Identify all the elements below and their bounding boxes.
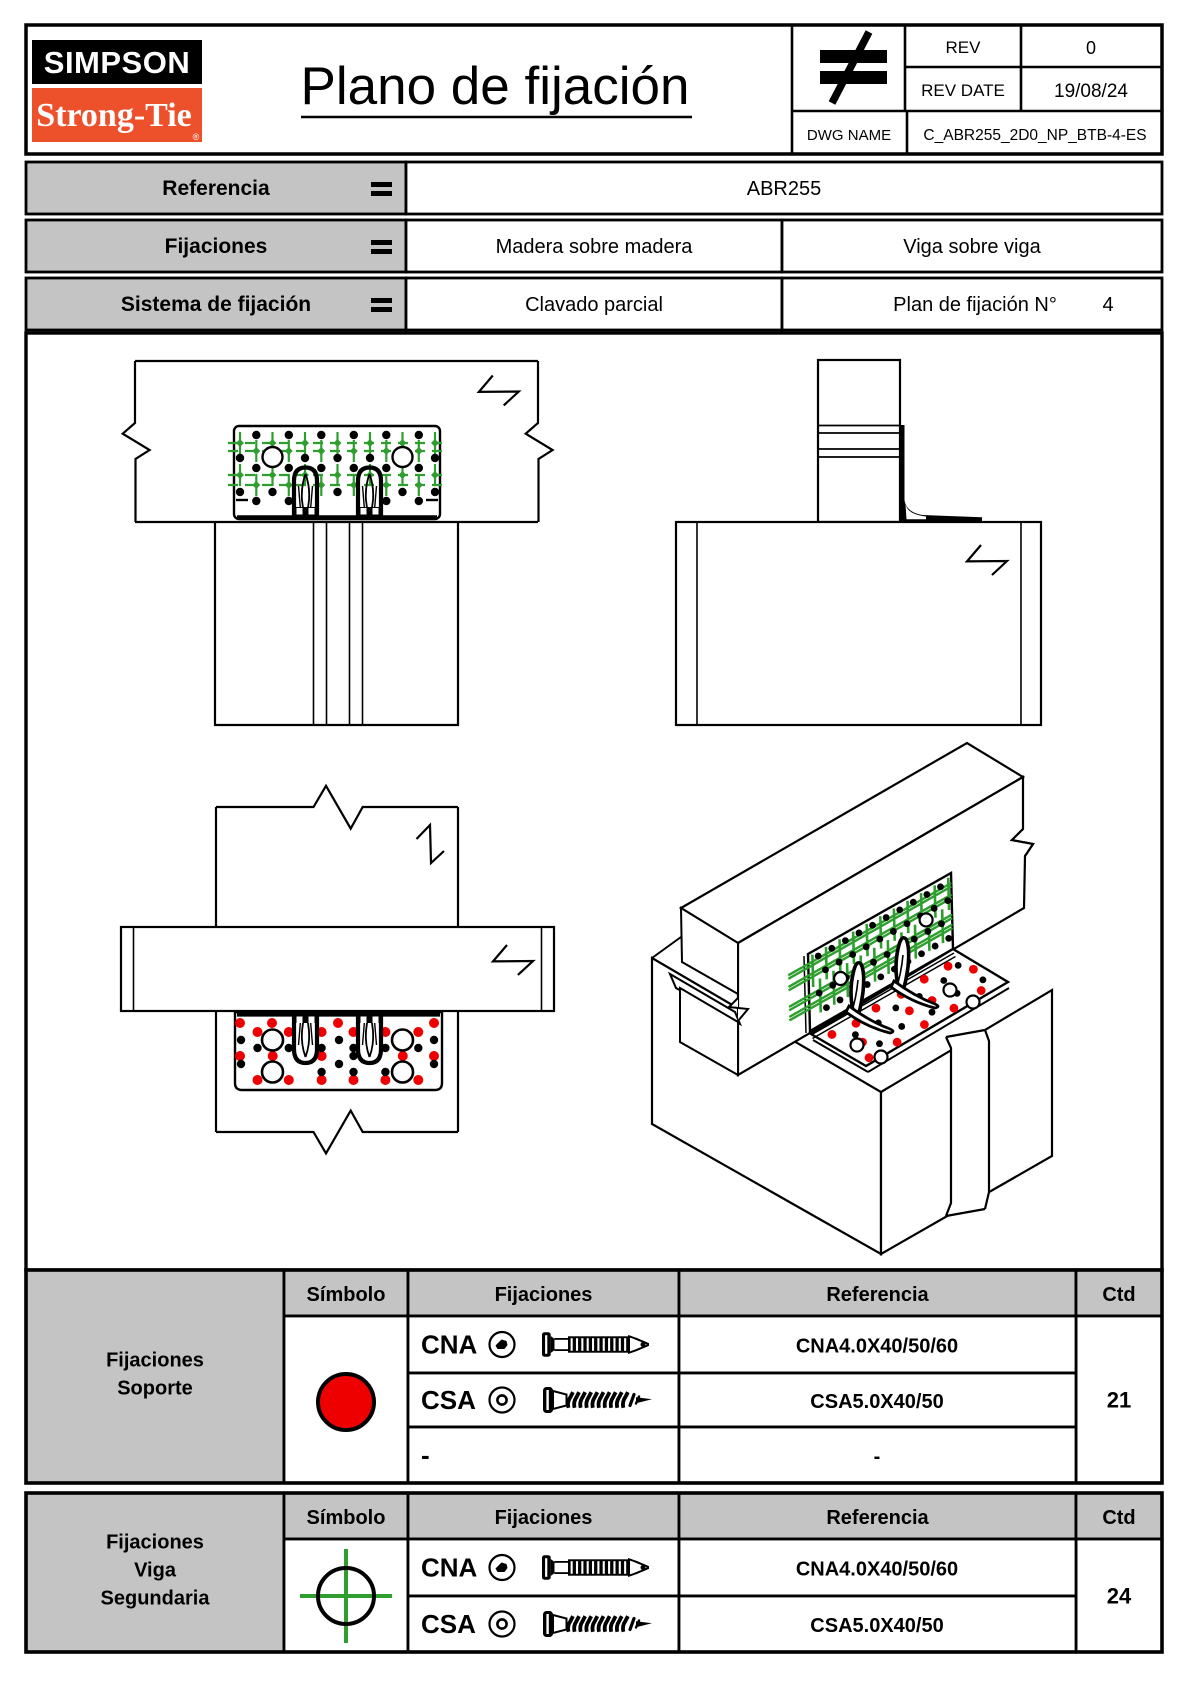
svg-text:Símbolo: Símbolo xyxy=(307,1507,386,1529)
svg-text:CNA: CNA xyxy=(421,1330,478,1360)
svg-text:Ctd: Ctd xyxy=(1102,1284,1135,1306)
svg-text:0: 0 xyxy=(1086,38,1096,58)
svg-text:Fijaciones: Fijaciones xyxy=(106,1350,204,1372)
svg-text:-: - xyxy=(874,1446,881,1468)
svg-text:Ctd: Ctd xyxy=(1102,1507,1135,1529)
svg-text:DWG NAME: DWG NAME xyxy=(807,127,891,144)
svg-text:REV: REV xyxy=(946,38,982,57)
svg-text:Strong-Tie: Strong-Tie xyxy=(36,97,192,134)
svg-text:Segundaria: Segundaria xyxy=(101,1588,211,1610)
svg-text:CSA: CSA xyxy=(421,1609,476,1639)
svg-text:Fijaciones: Fijaciones xyxy=(165,235,268,258)
svg-text:REV DATE: REV DATE xyxy=(921,81,1005,100)
svg-text:Sistema de fijación: Sistema de fijación xyxy=(121,293,311,316)
svg-text:19/08/24: 19/08/24 xyxy=(1054,81,1128,102)
svg-text:Viga: Viga xyxy=(134,1560,177,1582)
svg-text:-: - xyxy=(421,1440,430,1470)
svg-text:Fijaciones: Fijaciones xyxy=(495,1507,593,1529)
svg-text:CSA: CSA xyxy=(421,1385,476,1415)
svg-text:C_ABR255_2D0_NP_BTB-4-ES: C_ABR255_2D0_NP_BTB-4-ES xyxy=(923,127,1146,144)
svg-text:21: 21 xyxy=(1107,1388,1131,1413)
svg-text:4: 4 xyxy=(1102,294,1113,316)
svg-text:CNA4.0X40/50/60: CNA4.0X40/50/60 xyxy=(796,1559,958,1581)
svg-text:CNA4.0X40/50/60: CNA4.0X40/50/60 xyxy=(796,1336,958,1358)
svg-text:Referencia: Referencia xyxy=(826,1507,929,1529)
svg-text:Madera sobre madera: Madera sobre madera xyxy=(496,236,694,258)
svg-text:Referencia: Referencia xyxy=(826,1284,929,1306)
svg-text:SIMPSON: SIMPSON xyxy=(44,45,190,80)
svg-text:Plano de fijación: Plano de fijación xyxy=(301,57,690,116)
svg-text:ABR255: ABR255 xyxy=(747,178,822,200)
svg-text:CNA: CNA xyxy=(421,1553,478,1583)
svg-text:CSA5.0X40/50: CSA5.0X40/50 xyxy=(810,1391,943,1413)
svg-text:Fijaciones: Fijaciones xyxy=(106,1532,204,1554)
svg-text:®: ® xyxy=(193,132,200,142)
svg-text:Soporte: Soporte xyxy=(117,1378,193,1400)
svg-text:Plan de fijación N°: Plan de fijación N° xyxy=(893,294,1057,316)
svg-text:24: 24 xyxy=(1107,1584,1132,1609)
svg-text:Clavado parcial: Clavado parcial xyxy=(525,294,663,316)
svg-text:Símbolo: Símbolo xyxy=(307,1284,386,1306)
svg-text:Fijaciones: Fijaciones xyxy=(495,1284,593,1306)
svg-text:CSA5.0X40/50: CSA5.0X40/50 xyxy=(810,1615,943,1637)
svg-text:Referencia: Referencia xyxy=(162,177,270,200)
svg-text:Viga sobre viga: Viga sobre viga xyxy=(903,236,1041,258)
